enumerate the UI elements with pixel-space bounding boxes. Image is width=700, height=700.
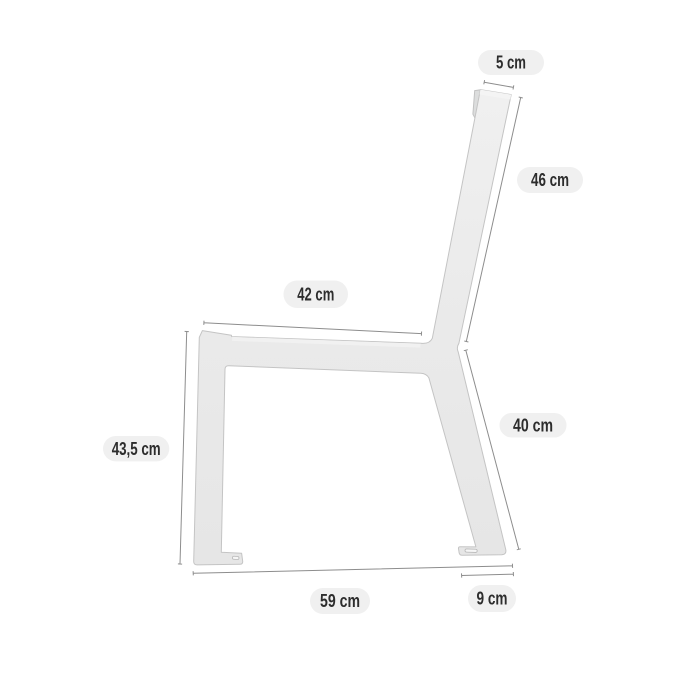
svg-text:9 cm: 9 cm [477,589,508,609]
svg-text:40 cm: 40 cm [513,416,553,436]
svg-text:42 cm: 42 cm [297,285,334,305]
svg-text:59 cm: 59 cm [320,591,360,611]
svg-text:5 cm: 5 cm [496,53,526,73]
svg-text:43,5 cm: 43,5 cm [112,439,161,459]
svg-text:46 cm: 46 cm [531,170,569,190]
